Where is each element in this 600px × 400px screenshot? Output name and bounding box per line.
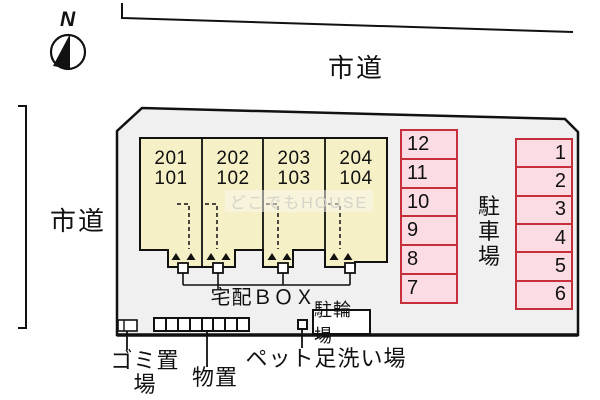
- storage-cell: [238, 319, 248, 330]
- unit-label-203-103: 203 103: [263, 149, 325, 189]
- bicycle-parking-label: 駐輪場: [314, 296, 369, 348]
- parking-space: 5: [515, 251, 573, 281]
- road-line-left: [18, 106, 26, 328]
- storage-cell: [155, 319, 165, 330]
- parking-space: 12: [400, 129, 458, 160]
- unit-label-204-104: 204 104: [325, 149, 387, 189]
- parking-space: 9: [400, 215, 458, 246]
- delivery-box-label: 宅配ＢＯＸ: [205, 287, 321, 309]
- garbage-label: ゴミ置場: [100, 349, 190, 397]
- garbage-box: [118, 320, 137, 331]
- parking-space: 2: [515, 166, 573, 196]
- parking-space: 3: [515, 195, 573, 225]
- storage-cell: [203, 319, 213, 330]
- parking-area-label: 駐車場: [477, 194, 501, 269]
- road-label-top: 市道: [320, 54, 392, 83]
- storage-cell: [214, 319, 224, 330]
- storage-units: [153, 317, 250, 332]
- compass-icon: [51, 34, 85, 69]
- storage-cell: [179, 319, 189, 330]
- storage-cell: [167, 319, 177, 330]
- parking-column-left: 12 11 10 9 8 7: [400, 129, 458, 304]
- road-line-top: [122, 3, 573, 32]
- north-label: N: [60, 8, 75, 31]
- storage-label: 物置: [188, 366, 242, 390]
- parking-space: 8: [400, 244, 458, 275]
- pet-wash-marker: [297, 319, 308, 330]
- parking-column-right: 1 2 3 4 5 6: [515, 138, 573, 310]
- unit-label-201-101: 201 101: [140, 149, 202, 189]
- road-label-left: 市道: [42, 207, 114, 236]
- pet-wash-label: ペット足洗い場: [238, 347, 414, 371]
- parking-space: 10: [400, 187, 458, 218]
- parking-space: 1: [515, 138, 573, 168]
- storage-cell: [191, 319, 201, 330]
- parking-space: 6: [515, 280, 573, 310]
- site-plan: N 市道 市道 201 101 202 102 203 103 204 104 …: [0, 0, 600, 400]
- unit-label-202-102: 202 102: [202, 149, 264, 189]
- parking-space: 7: [400, 273, 458, 304]
- storage-cell: [226, 319, 236, 330]
- parking-space: 4: [515, 223, 573, 253]
- parking-space: 11: [400, 158, 458, 189]
- bicycle-parking-box: 駐輪場: [312, 309, 371, 335]
- watermark: どこでもHOUSE: [225, 190, 373, 212]
